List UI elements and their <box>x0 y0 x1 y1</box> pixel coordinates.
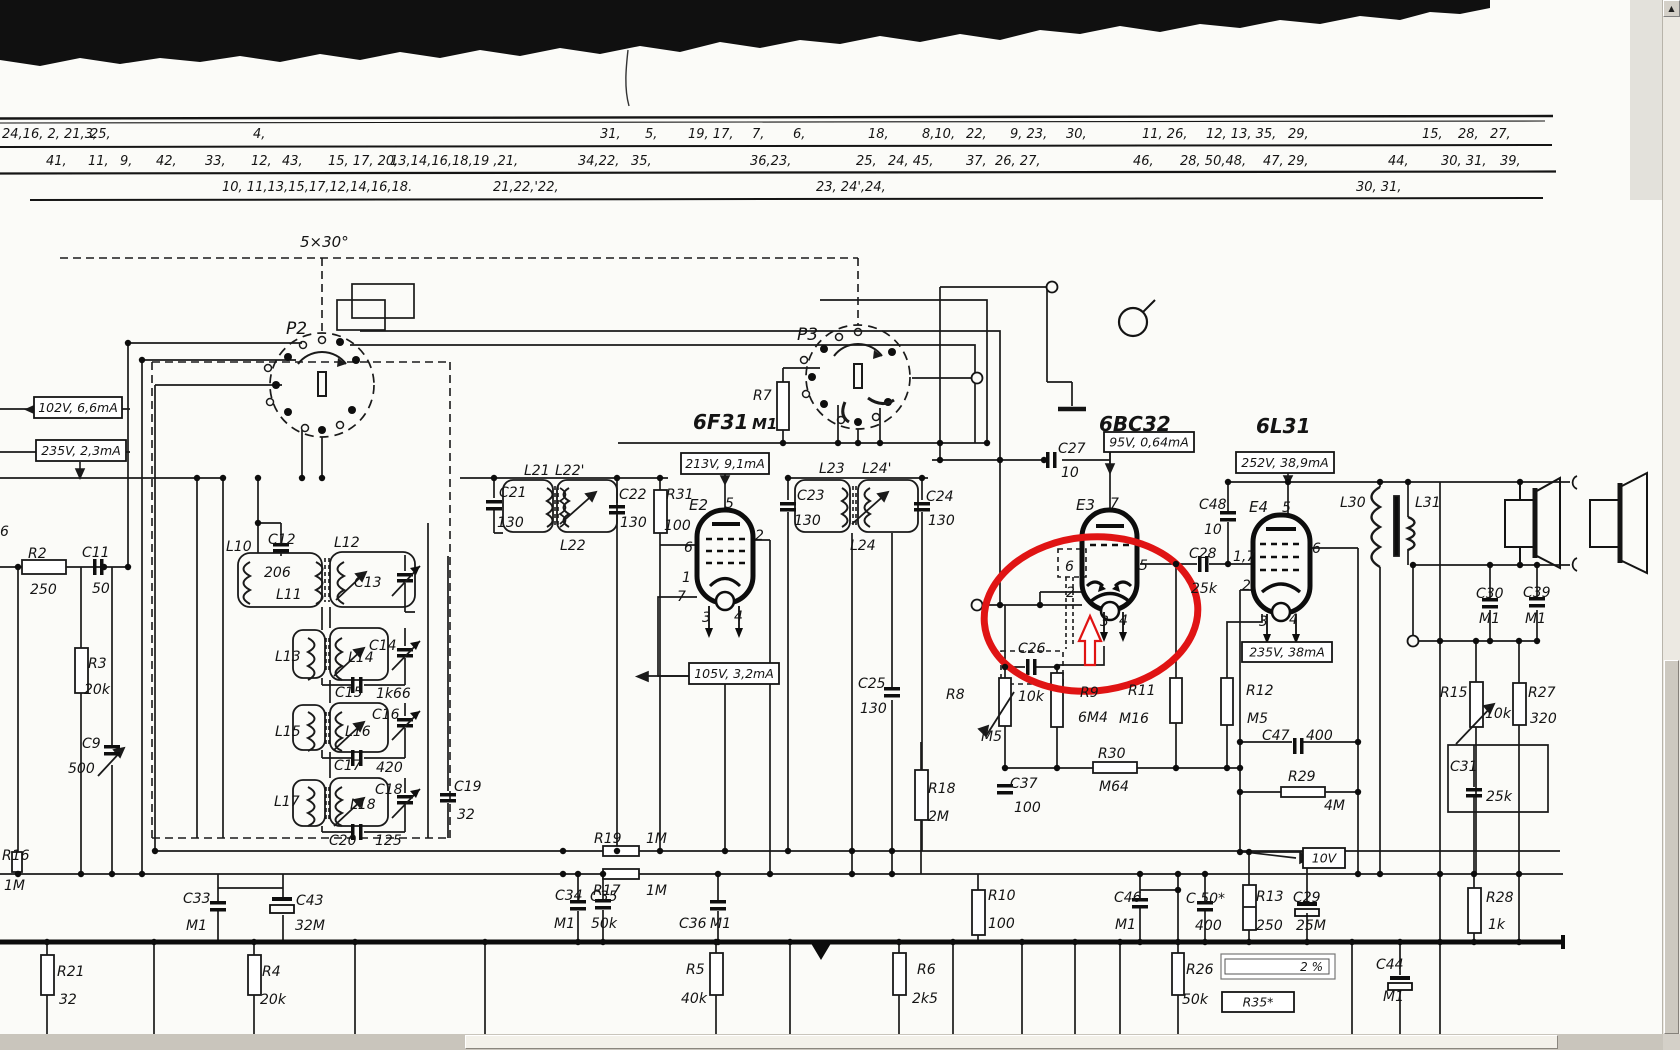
component-label: L10 <box>226 539 252 555</box>
pin-number: 44, <box>1388 154 1409 169</box>
component-label: 6 <box>0 524 9 540</box>
measurement-box: 235V, 2,3mA <box>36 440 126 461</box>
component-label: C15 <box>335 685 363 701</box>
scroll-up-button[interactable]: ▲ <box>1663 0 1680 17</box>
component-label: 400 <box>1306 728 1333 744</box>
component-label: C33 <box>183 891 211 907</box>
component-label: C46 <box>1114 890 1142 906</box>
component-label: C16 <box>372 707 400 723</box>
pin-number: 35, <box>631 154 652 169</box>
component-label: L23 <box>819 461 845 477</box>
component-label: L17 <box>274 794 300 810</box>
pin-number: 43, <box>282 154 303 169</box>
component-label: 4 <box>1119 613 1128 629</box>
component-label: 4M <box>1324 798 1345 814</box>
pin-number: 18, <box>868 127 889 142</box>
component-label: 50 <box>92 581 110 597</box>
schematic-viewer: 24,16, 2, 21,3,25,4,31,5,19, 17,7,6,18,8… <box>0 0 1680 1050</box>
component-label: 3 <box>702 610 711 626</box>
component-label: 130 <box>794 513 821 529</box>
component-label: 6 <box>684 540 693 556</box>
component-label: L13 <box>275 649 301 665</box>
component-label: E2 <box>689 496 708 514</box>
measurement-box: R35* <box>1222 992 1294 1012</box>
component-label: 320 <box>1530 711 1557 727</box>
component-label: 2M <box>928 809 949 825</box>
component-label: C13 <box>354 575 382 591</box>
component-label: 40k <box>681 991 708 1007</box>
component-label: 5 <box>1282 500 1291 516</box>
pin-number: 10, 11,13,15,17,12,14,16,18. <box>222 180 412 195</box>
component-label: 400 <box>1195 918 1222 934</box>
coil-assemblies <box>238 480 1415 826</box>
pin-number-rows: 24,16, 2, 21,3,25,4,31,5,19, 17,7,6,18,8… <box>2 127 1521 195</box>
component-label: C47 <box>1262 728 1290 744</box>
pin-number: 9, <box>120 154 132 169</box>
component-label: 20k <box>260 992 287 1008</box>
component-label: M1 <box>1525 611 1546 627</box>
component-label: R16 <box>2 848 30 864</box>
tolerance-value: 2 % <box>1300 960 1323 974</box>
pin-number: 24, 45, <box>888 154 933 169</box>
component-label: C36 <box>679 916 707 932</box>
measurement-box: 235V, 38mA <box>1242 642 1332 662</box>
component-label: R30 <box>1098 746 1126 762</box>
component-label: 206 <box>264 565 291 581</box>
pin-number: 11, <box>88 154 109 169</box>
component-label: R29 <box>1288 769 1316 785</box>
pin-number: 25, <box>856 154 877 169</box>
component-label: 2 <box>1066 585 1075 601</box>
component-label: 25k <box>1191 581 1218 597</box>
component-label: C9 <box>82 736 101 752</box>
component-label: 250 <box>1256 918 1283 934</box>
paper-crease <box>626 50 629 106</box>
component-label: 25M <box>1296 918 1326 934</box>
component-label: C35 <box>590 889 618 905</box>
component-label: 1,7 <box>1233 549 1255 565</box>
component-label: L11 <box>276 587 302 603</box>
component-label: M1 <box>710 916 731 932</box>
component-labels: 6R2250C1150R320kC9500R161MR2132R420kC33M… <box>0 233 1557 1008</box>
component-label: C17 <box>334 758 362 774</box>
pin-number: 15, <box>1422 127 1443 142</box>
component-label: 420 <box>376 760 403 776</box>
tube-type-heading: 6L31 <box>1256 414 1311 438</box>
component-label: M5 <box>981 729 1002 745</box>
scrollbar-corner <box>1663 1034 1680 1050</box>
measurement-box: 252V, 38,9mA <box>1236 452 1334 473</box>
pin-number: 21,22,'22, <box>493 180 559 195</box>
component-label: E3 <box>1076 496 1095 514</box>
component-label: 1M <box>4 878 25 894</box>
component-label: 125 <box>375 833 402 849</box>
component-label: R10 <box>988 888 1016 904</box>
pin-number: 9, 23, <box>1010 127 1047 142</box>
highlight-ellipse <box>978 528 1205 700</box>
component-label: 2k5 <box>912 991 938 1007</box>
component-label: 25k <box>1486 789 1513 805</box>
component-label: 1M <box>646 831 667 847</box>
component-label: C 50* <box>1186 891 1225 907</box>
measurement-value: 95V, 0,64mA <box>1109 435 1189 450</box>
component-label: R13 <box>1256 889 1284 905</box>
pin-number: 22, <box>966 127 987 142</box>
pin-number: 6, <box>793 127 805 142</box>
measurement-box: 105V, 3,2mA <box>689 663 779 684</box>
pin-number: 11, 26, <box>1142 127 1187 142</box>
measurement-value: R35* <box>1243 995 1274 1010</box>
component-label: E4 <box>1249 498 1268 516</box>
component-label: M1 <box>186 918 207 934</box>
component-label: L31 <box>1415 495 1441 511</box>
component-label: 6M4 <box>1078 710 1108 726</box>
component-label: R3 <box>88 656 107 672</box>
component-label: 130 <box>928 513 955 529</box>
component-label: P2 <box>286 319 307 339</box>
component-label: M1 <box>554 916 575 932</box>
pin-number: 42, <box>156 154 177 169</box>
tolerance-field[interactable]: 2 % <box>1221 954 1335 979</box>
component-label: R21 <box>57 964 85 980</box>
component-label: C48 <box>1199 497 1227 513</box>
component-label: 2 <box>755 528 764 544</box>
speakers <box>1505 473 1647 573</box>
component-label: C37 <box>1010 776 1038 792</box>
component-label: R11 <box>1128 683 1156 699</box>
component-label: C19 <box>454 779 482 795</box>
measurement-box: 102V, 6,6mA <box>34 397 122 418</box>
component-label: C28 <box>1189 546 1217 562</box>
pin-number: 23, 24',24, <box>816 180 886 195</box>
component-label: R9 <box>1080 685 1099 701</box>
component-label: C31 <box>1450 759 1478 775</box>
component-label: L22 <box>560 538 586 554</box>
component-label: C27 <box>1058 441 1086 457</box>
tube-type-heading: M1 <box>752 415 777 433</box>
component-label: R2 <box>28 546 47 562</box>
component-label: 6 <box>1065 559 1074 575</box>
component-label: 5 <box>1139 558 1148 574</box>
component-label: C34 <box>555 888 583 904</box>
component-label: 250 <box>30 582 57 598</box>
component-label: C14 <box>369 638 397 654</box>
component-label: R18 <box>928 781 956 797</box>
schematic-canvas: 24,16, 2, 21,3,25,4,31,5,19, 17,7,6,18,8… <box>0 0 1680 1050</box>
scroll-up-icon: ▲ <box>1668 4 1674 13</box>
pin-number: 30, <box>1066 127 1087 142</box>
component-label: 32 <box>457 807 475 823</box>
component-label: 1k <box>1488 917 1506 933</box>
component-label: R5 <box>686 962 705 978</box>
component-label: M5 <box>1247 711 1268 727</box>
component-label: M16 <box>1119 711 1149 727</box>
component-label: 130 <box>620 515 647 531</box>
component-label: R26 <box>1186 962 1214 978</box>
component-label: 32 <box>59 992 77 1008</box>
pin-number: 30, 31, <box>1356 180 1401 195</box>
rotary-switch-p2 <box>265 284 415 437</box>
component-label: C23 <box>797 488 825 504</box>
component-label: M1 <box>1115 917 1136 933</box>
vertical-scrollbar-thumb[interactable] <box>1664 660 1679 1034</box>
component-label: 130 <box>860 701 887 717</box>
component-label: C21 <box>499 485 527 501</box>
measurement-value: 235V, 2,3mA <box>41 443 121 458</box>
pin-number: 47, 29, <box>1263 154 1308 169</box>
measurement-value: 102V, 6,6mA <box>38 400 118 415</box>
measurement-box: 213V, 9,1mA <box>681 453 769 474</box>
pin-number: 8,10, <box>922 127 955 142</box>
component-label: 10k <box>1018 689 1045 705</box>
component-label: R6 <box>917 962 936 978</box>
component-label: 100 <box>664 518 691 534</box>
component-label: M1 <box>1479 611 1500 627</box>
pin-number: 13,14,16,18,19 ,21, <box>390 154 518 169</box>
pin-number: 33, <box>205 154 226 169</box>
pin-number: 28, <box>1458 127 1479 142</box>
component-label: M1 <box>1383 989 1404 1005</box>
component-label: 50k <box>1182 992 1209 1008</box>
component-label: 6 <box>1312 541 1321 557</box>
component-label: C30 <box>1476 586 1504 602</box>
pin-number: 7, <box>752 127 764 142</box>
component-label: 500 <box>68 761 95 777</box>
component-label: C11 <box>82 545 110 561</box>
pin-number: 4, <box>253 127 265 142</box>
pin-number: 30, 31, <box>1441 154 1486 169</box>
component-label: L16 <box>345 724 371 740</box>
component-label: 10k <box>1485 706 1512 722</box>
component-label: C44 <box>1376 957 1404 973</box>
pin-number: 12, 13, 35, <box>1206 127 1276 142</box>
component-label: 100 <box>988 916 1015 932</box>
component-label: P3 <box>797 325 818 345</box>
component-label: R28 <box>1486 890 1514 906</box>
component-label: L30 <box>1340 495 1366 511</box>
pin-number: 28, 50,48, <box>1180 154 1246 169</box>
torn-paper-edge <box>0 0 1490 66</box>
highlight-annotation <box>978 528 1205 700</box>
pin-number: 24,16, 2, 21,3, <box>2 127 97 142</box>
component-label: 4 <box>1289 612 1298 628</box>
component-label: 32M <box>295 918 325 934</box>
measurement-box: 95V, 0,64mA <box>1104 432 1194 452</box>
component-label: C43 <box>296 893 324 909</box>
pin-number: 36,23, <box>750 154 791 169</box>
pin-number: 12, <box>251 154 272 169</box>
component-label: L18 <box>350 797 376 813</box>
pin-number: 26, 27, <box>995 154 1040 169</box>
component-label: L21 <box>524 463 550 479</box>
measurement-value: 10V <box>1312 851 1338 866</box>
component-label: 5 <box>725 496 734 512</box>
measurement-value: 252V, 38,9mA <box>1241 455 1328 470</box>
component-label: C26 <box>1018 641 1046 657</box>
component-label: 2 <box>1242 578 1251 594</box>
pin-number: 29, <box>1288 127 1309 142</box>
component-label: L24' <box>862 461 891 477</box>
scan-margin <box>1630 0 1663 200</box>
component-label: C24 <box>926 489 954 505</box>
component-label: 10 <box>1204 522 1222 538</box>
component-label: R4 <box>262 964 281 980</box>
highlight-arrow-icon <box>1079 616 1101 665</box>
component-label: 50k <box>591 916 618 932</box>
tube-type-heading: 6F31 <box>693 410 748 434</box>
horizontal-scrollbar[interactable] <box>0 1034 1663 1050</box>
component-label: R19 <box>594 831 622 847</box>
component-label: 7 <box>677 589 686 605</box>
component-label: 1 <box>682 570 691 586</box>
component-label: L15 <box>275 724 301 740</box>
pin-number: 15, 17, 20, <box>328 154 398 169</box>
component-label: C39 <box>1523 585 1551 601</box>
component-label: 5×30° <box>300 233 349 251</box>
component-label: 100 <box>1014 800 1041 816</box>
component-label: 3 <box>1259 614 1268 630</box>
component-label: C29 <box>1293 890 1321 906</box>
horizontal-scrollbar-thumb[interactable] <box>465 1035 1558 1049</box>
pin-number: 41, <box>46 154 67 169</box>
pin-number: 39, <box>1500 154 1521 169</box>
component-label: C22 <box>619 487 647 503</box>
component-label: M64 <box>1099 779 1129 795</box>
pin-number: 19, 17, <box>688 127 733 142</box>
component-label: R27 <box>1528 685 1556 701</box>
component-label: 20k <box>84 682 111 698</box>
measurement-value: 235V, 38mA <box>1249 645 1325 660</box>
component-label: 130 <box>497 515 524 531</box>
component-label: 1M <box>646 883 667 899</box>
component-label: L24 <box>850 538 876 554</box>
component-label: 7 <box>1110 496 1119 512</box>
component-label: C12 <box>268 532 296 548</box>
pin-number: 31, <box>600 127 621 142</box>
pin-number: 25, <box>90 127 111 142</box>
component-label: C20 <box>329 833 357 849</box>
pin-number: 37, <box>966 154 987 169</box>
component-label: 4 <box>734 609 743 625</box>
measurement-value: 213V, 9,1mA <box>685 456 765 471</box>
component-label: 3 <box>1100 614 1109 630</box>
pin-number: 27, <box>1490 127 1511 142</box>
component-label: C18 <box>375 782 403 798</box>
vertical-scrollbar[interactable]: ▲ <box>1662 0 1680 1050</box>
component-label: 1k66 <box>376 686 411 702</box>
component-label: L22' <box>555 463 584 479</box>
component-label: C25 <box>858 676 886 692</box>
component-label: R15 <box>1440 685 1468 701</box>
measurement-box: 10V <box>1303 848 1345 868</box>
component-label: R8 <box>946 687 965 703</box>
pin-number: 5, <box>645 127 657 142</box>
component-label: 10 <box>1061 465 1079 481</box>
component-label: R7 <box>753 388 772 404</box>
pin-number: 46, <box>1133 154 1154 169</box>
component-label: L12 <box>334 535 360 551</box>
component-label: R12 <box>1246 683 1274 699</box>
measurement-value: 105V, 3,2mA <box>694 666 774 681</box>
pin-number: 34,22, <box>578 154 619 169</box>
